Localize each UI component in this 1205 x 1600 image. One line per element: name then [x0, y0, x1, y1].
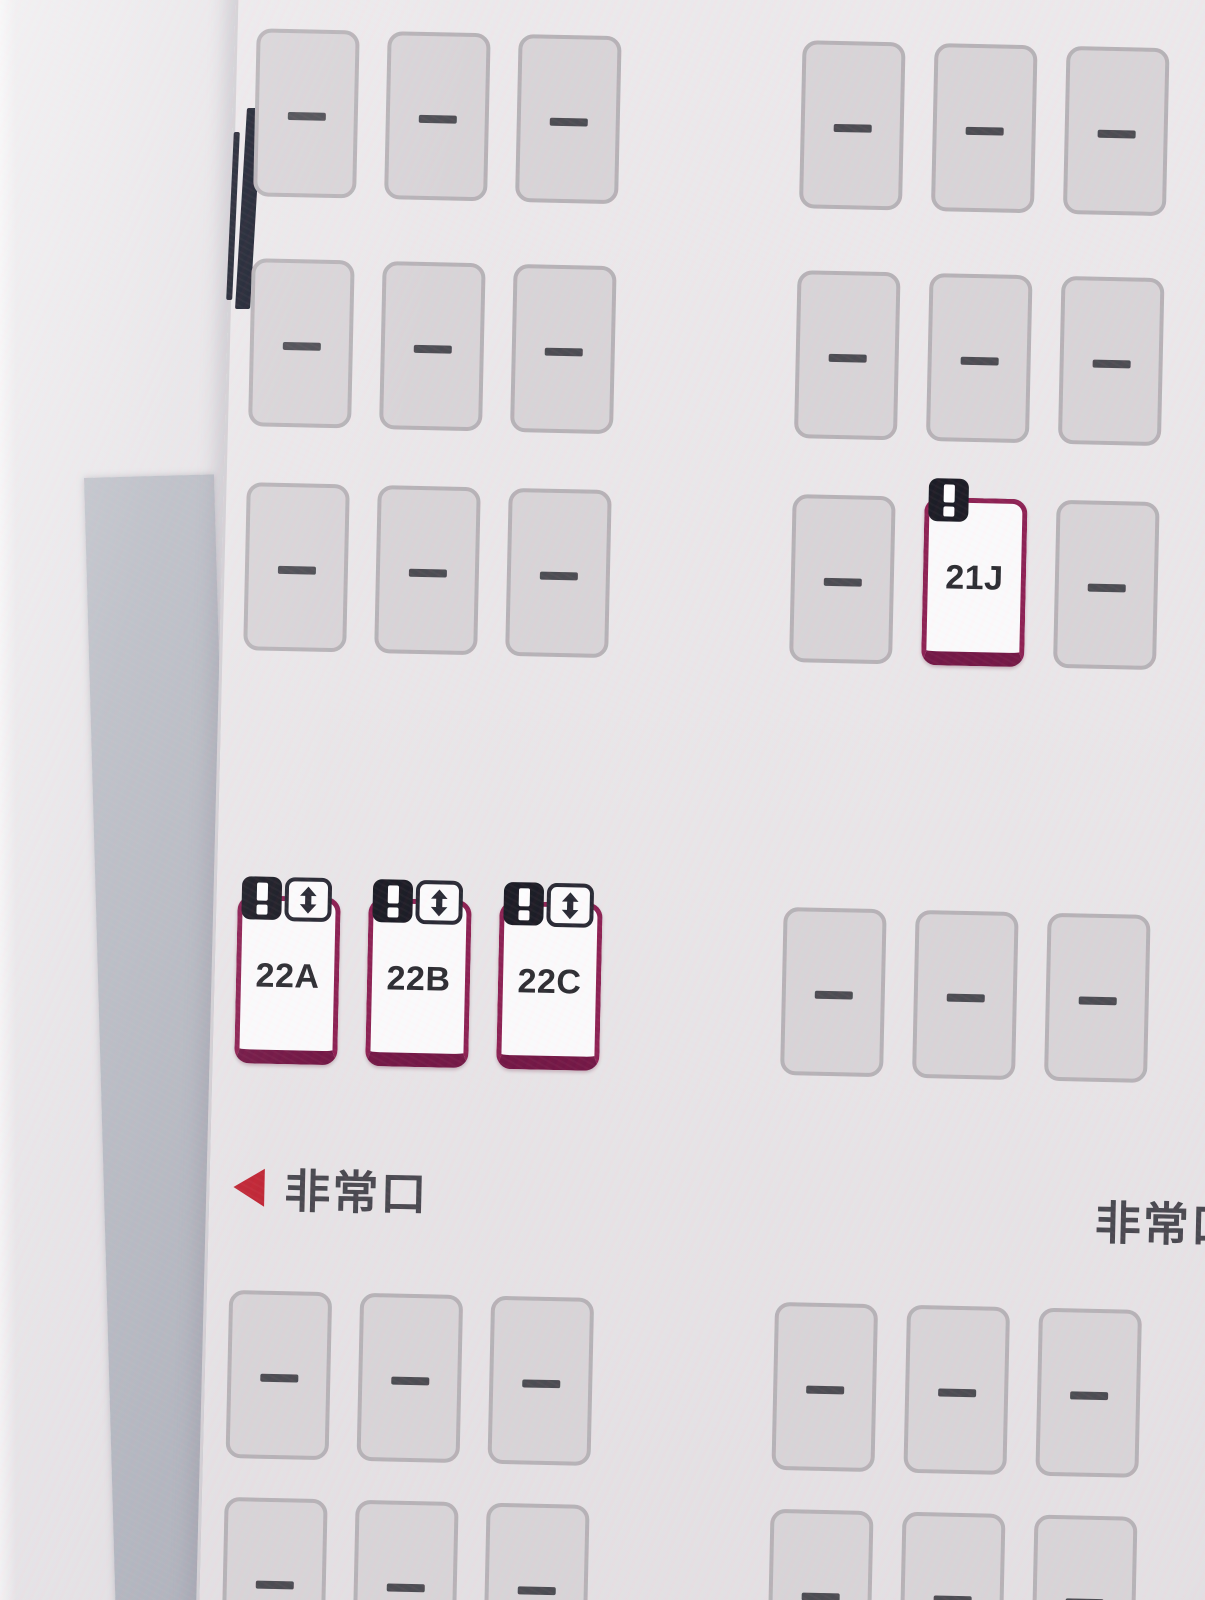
unavailable-dash-icon [522, 1379, 560, 1388]
seat-unavailable [248, 258, 355, 428]
seat-row [0, 1492, 1189, 1600]
seat-group-right [780, 907, 1151, 1083]
seat-unavailable [903, 1305, 1010, 1475]
unavailable-dash-icon [260, 1374, 298, 1383]
seat-unavailable [794, 270, 901, 440]
seat-unavailable [505, 488, 612, 658]
unavailable-dash-icon [517, 1586, 555, 1595]
seat-group-left [221, 1497, 590, 1600]
seatmap: 21J 22A22B22C 非常口 非常口 [0, 0, 1205, 1600]
seat-label: 22C [517, 962, 582, 1002]
exit-left-label: 非常口 [233, 1157, 429, 1221]
seatmap-screen: 21J 22A22B22C 非常口 非常口 [0, 0, 1205, 1600]
seat-unavailable [379, 261, 486, 431]
unavailable-dash-icon [1097, 130, 1135, 139]
updown-arrow-glyph [295, 885, 321, 915]
seat-group-right [794, 270, 1165, 446]
seat-label: 21J [945, 558, 1004, 598]
unavailable-dash-icon [1092, 360, 1130, 369]
seat-unavailable [1044, 913, 1151, 1083]
seat-22B[interactable]: 22B [365, 898, 472, 1068]
unavailable-dash-icon [965, 127, 1003, 136]
seat-unavailable [253, 28, 360, 198]
seat-unavailable [357, 1293, 464, 1463]
seat-21J[interactable]: 21J [921, 497, 1028, 667]
seat-22A[interactable]: 22A [234, 895, 341, 1065]
seat-unavailable [1058, 276, 1165, 446]
updown-arrow-glyph [426, 888, 452, 918]
seat-unavailable [912, 910, 1019, 1080]
unavailable-dash-icon [418, 115, 456, 124]
seat-group-left: 22A22B22C [234, 895, 603, 1071]
seat-unavailable [799, 40, 906, 210]
seat-unavailable [510, 264, 617, 434]
unavailable-dash-icon [255, 1581, 293, 1590]
unavailable-dash-icon [946, 994, 984, 1003]
extra-legroom-icon [546, 883, 594, 928]
seat-unavailable [374, 485, 481, 655]
seat-unavailable [1031, 1515, 1138, 1600]
seat-unavailable [483, 1503, 590, 1600]
seat-22C[interactable]: 22C [496, 901, 603, 1071]
unavailable-dash-icon [1078, 996, 1116, 1005]
seat-group-right: 21J [789, 494, 1160, 670]
unavailable-dash-icon [386, 1583, 424, 1592]
unavailable-dash-icon [544, 348, 582, 357]
seat-unavailable [926, 273, 1033, 443]
seat-label: 22B [386, 959, 451, 999]
unavailable-dash-icon [814, 991, 852, 1000]
unavailable-dash-icon [806, 1386, 844, 1395]
seat-unavailable [1035, 1308, 1142, 1478]
unavailable-dash-icon [539, 572, 577, 581]
seat-group-right [799, 40, 1170, 216]
extra-legroom-icon [415, 880, 463, 925]
seat-row: 21J [3, 477, 1205, 671]
seat-group-right [771, 1302, 1142, 1478]
exit-row-indicator: 非常口 非常口 [0, 1152, 1197, 1238]
seat-badges [241, 876, 332, 922]
seat-row [8, 253, 1205, 447]
unavailable-dash-icon [1087, 584, 1125, 593]
seat-badges [928, 478, 969, 522]
seat-row [13, 23, 1205, 217]
unavailable-dash-icon [408, 569, 446, 578]
seat-group-right [767, 1509, 1138, 1600]
seat-group-left [243, 482, 612, 658]
seat-group-left [248, 258, 617, 434]
unavailable-dash-icon [960, 357, 998, 366]
seat-unavailable [515, 34, 622, 204]
seat-unavailable [487, 1296, 594, 1466]
seat-unavailable [352, 1500, 459, 1600]
unavailable-dash-icon [549, 118, 587, 127]
unavailable-dash-icon [287, 112, 325, 121]
seat-unavailable [899, 1512, 1006, 1600]
exit-right-label: 非常口 [1094, 1190, 1205, 1254]
unavailable-dash-icon [277, 566, 315, 575]
unavailable-dash-icon [1070, 1391, 1108, 1400]
exclamation-icon [241, 876, 282, 920]
seat-unavailable [1053, 500, 1160, 670]
unavailable-dash-icon [823, 578, 861, 587]
unavailable-dash-icon [933, 1595, 971, 1600]
updown-arrow-glyph [557, 891, 583, 921]
seat-unavailable [780, 907, 887, 1077]
unavailable-dash-icon [801, 1593, 839, 1600]
exclamation-icon [372, 879, 413, 923]
seat-unavailable [243, 482, 350, 652]
seat-group-left [253, 28, 622, 204]
unavailable-dash-icon [391, 1377, 429, 1386]
seat-unavailable [771, 1302, 878, 1472]
seat-unavailable [226, 1290, 333, 1460]
unavailable-dash-icon [828, 354, 866, 363]
seat-unavailable [1063, 46, 1170, 216]
seat-badges [372, 879, 463, 925]
seat-row: 22A22B22C [0, 890, 1203, 1084]
unavailable-dash-icon [413, 345, 451, 354]
seat-unavailable [789, 494, 896, 664]
exit-label-text: 非常口 [284, 1155, 429, 1224]
extra-legroom-icon [284, 877, 332, 922]
seat-label: 22A [255, 956, 320, 996]
seat-badges [503, 882, 594, 928]
exclamation-icon [928, 478, 969, 522]
unavailable-dash-icon [833, 124, 871, 133]
seat-group-left [226, 1290, 595, 1466]
seat-unavailable [384, 31, 491, 201]
seat-row [0, 1285, 1194, 1479]
unavailable-dash-icon [282, 342, 320, 351]
exit-left-arrow-icon [233, 1168, 265, 1207]
seat-unavailable [221, 1497, 328, 1600]
unavailable-dash-icon [938, 1388, 976, 1397]
seat-unavailable [767, 1509, 874, 1600]
seat-unavailable [931, 43, 1038, 213]
exclamation-icon [503, 882, 544, 926]
exit-label-text: 非常口 [1094, 1187, 1205, 1256]
